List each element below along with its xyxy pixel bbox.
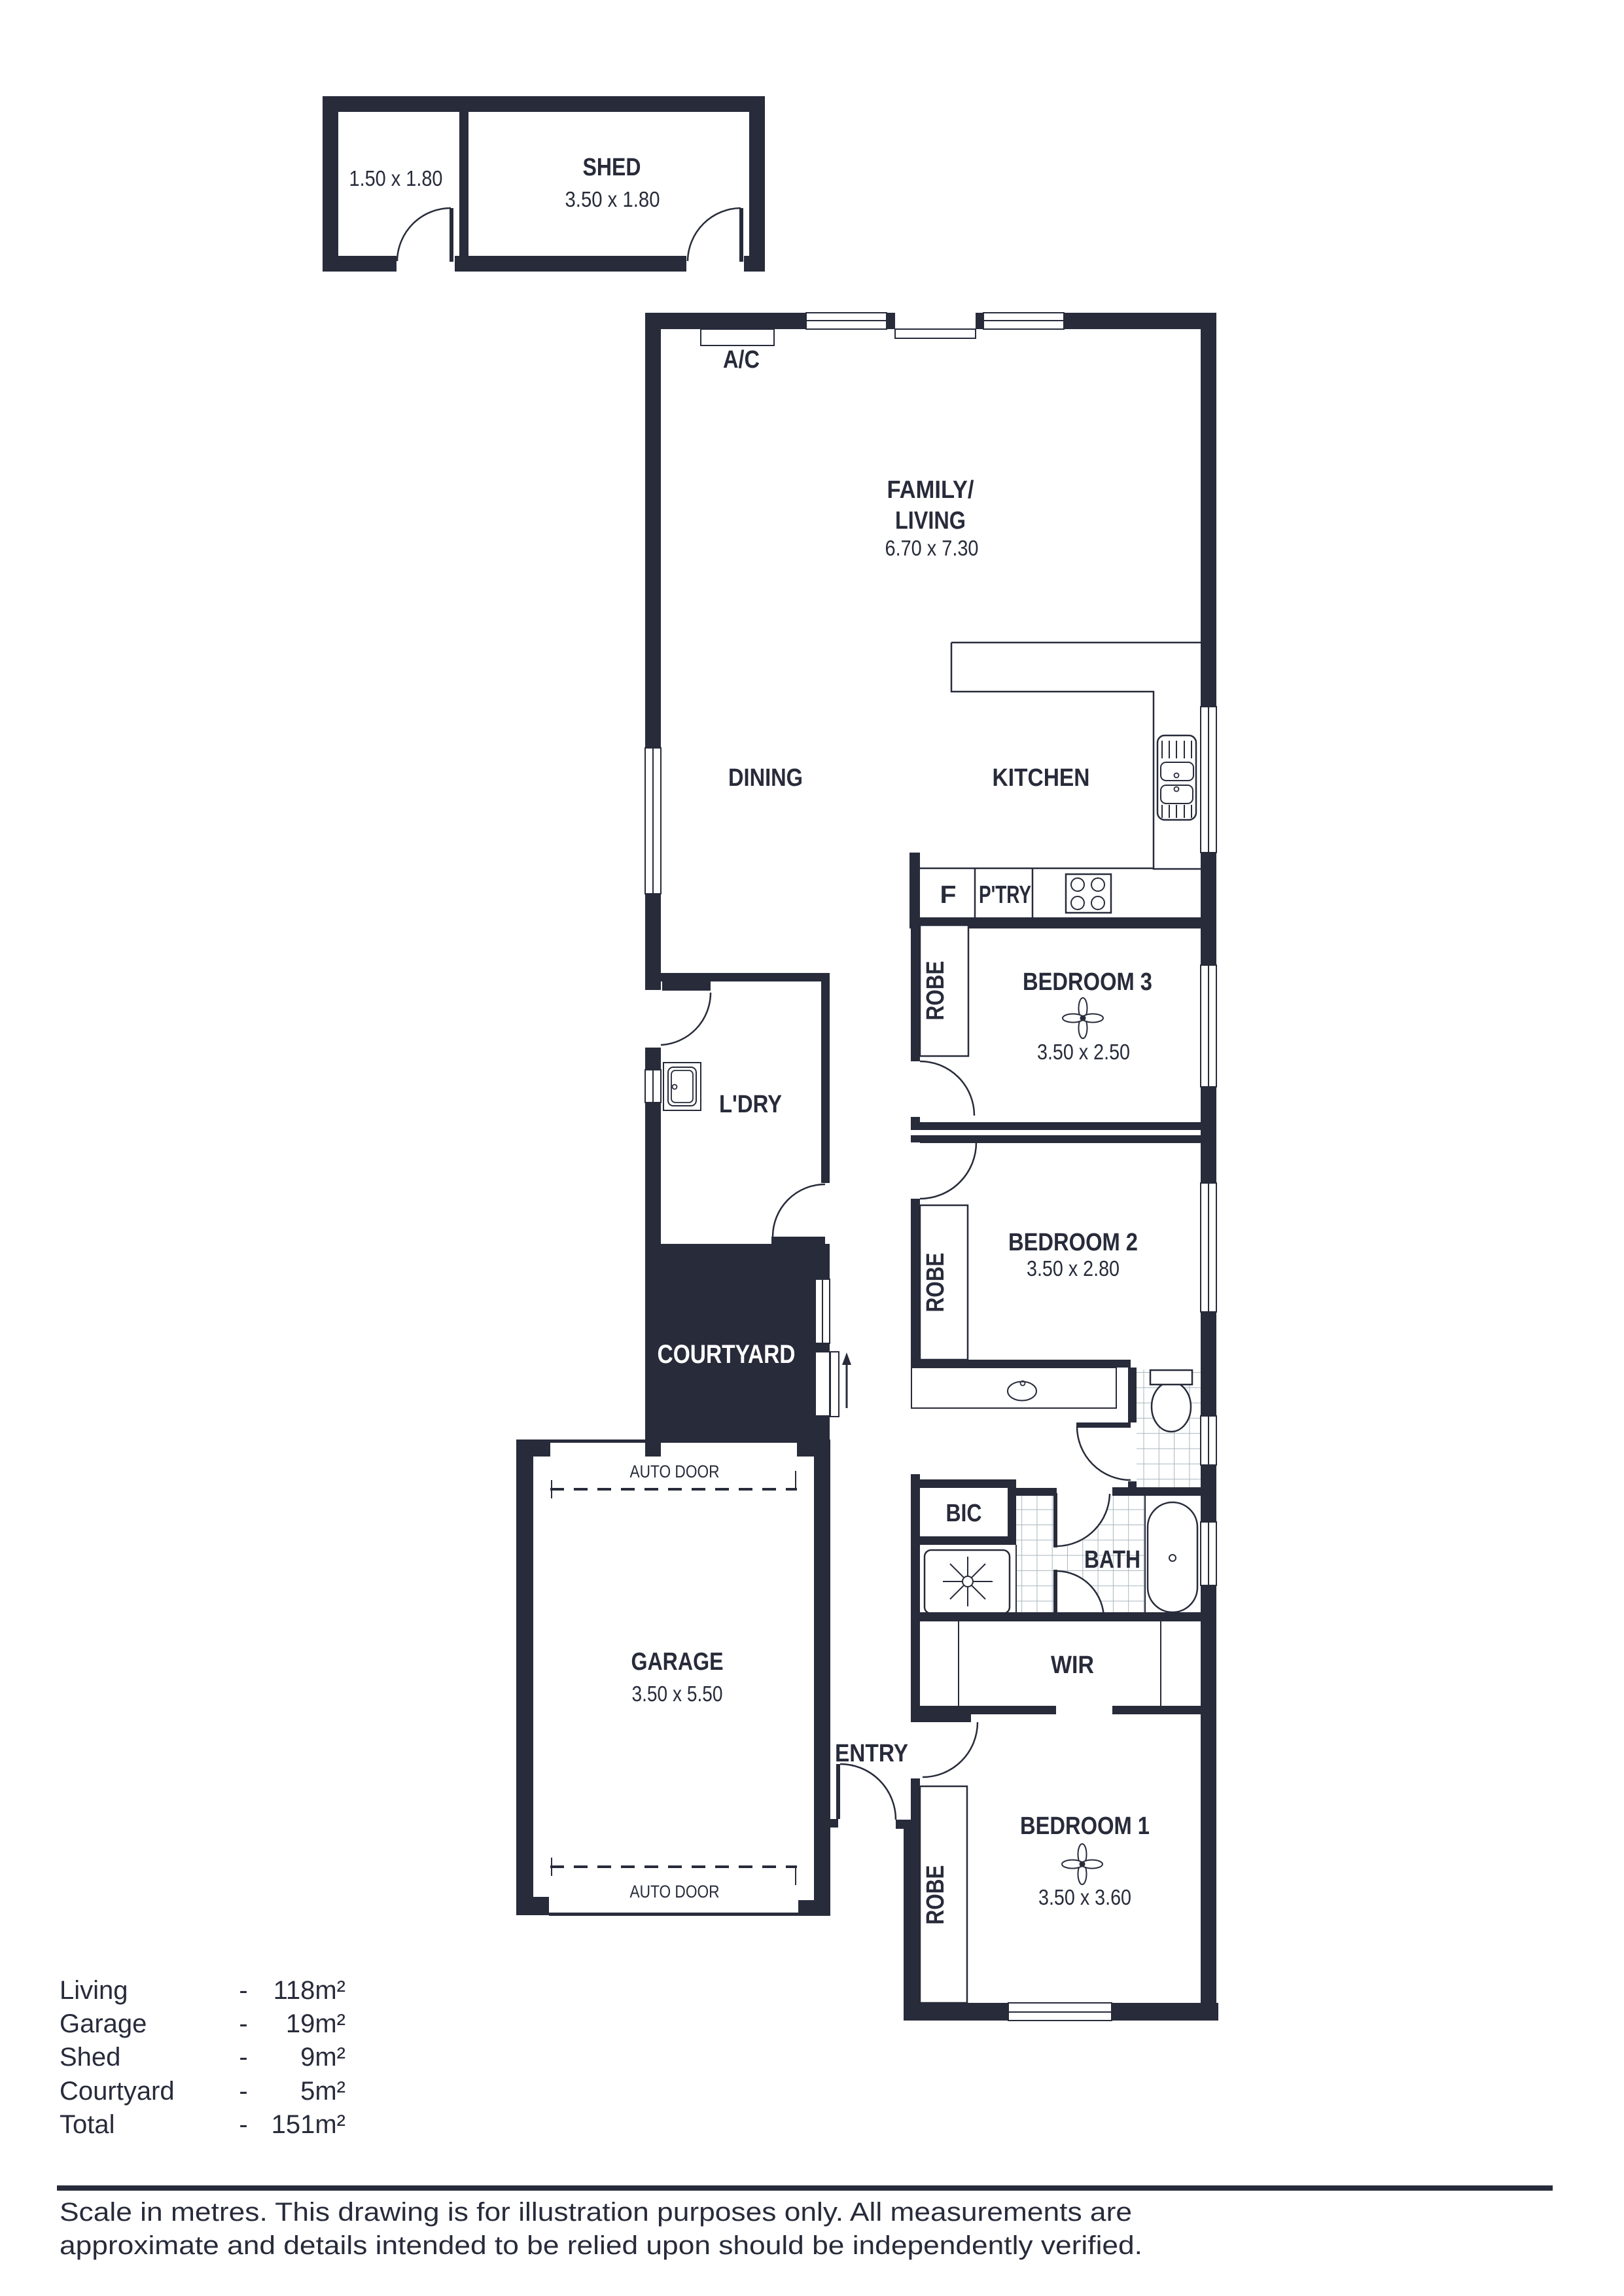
- svg-text:6.70 x 7.30: 6.70 x 7.30: [885, 536, 979, 560]
- svg-text:-: -: [239, 2009, 247, 2038]
- svg-text:151m²: 151m²: [272, 2110, 345, 2139]
- svg-text:Total: Total: [60, 2110, 115, 2139]
- svg-text:GARAGE: GARAGE: [631, 1648, 724, 1676]
- svg-text:BEDROOM 3: BEDROOM 3: [1023, 968, 1152, 996]
- svg-text:19m²: 19m²: [286, 2009, 345, 2038]
- svg-text:3.50 x 2.50: 3.50 x 2.50: [1037, 1040, 1130, 1064]
- svg-text:WIR: WIR: [1051, 1651, 1094, 1679]
- svg-text:FAMILY/: FAMILY/: [887, 476, 974, 504]
- svg-text:LIVING: LIVING: [895, 507, 966, 535]
- svg-text:-: -: [239, 2110, 247, 2139]
- svg-text:BIC: BIC: [946, 1500, 982, 1527]
- svg-text:L'DRY: L'DRY: [719, 1091, 782, 1118]
- svg-text:BATH: BATH: [1084, 1546, 1140, 1574]
- svg-text:3.50 x 2.80: 3.50 x 2.80: [1027, 1256, 1120, 1280]
- svg-text:3.50 x 5.50: 3.50 x 5.50: [632, 1682, 723, 1706]
- svg-text:5m²: 5m²: [300, 2077, 345, 2106]
- svg-text:Scale in metres. This drawing: Scale in metres. This drawing is for ill…: [60, 2198, 1132, 2227]
- svg-text:F: F: [940, 881, 957, 909]
- svg-text:approximate and details intend: approximate and details intended to be r…: [60, 2231, 1142, 2260]
- svg-text:-: -: [239, 2077, 247, 2106]
- svg-text:Living: Living: [60, 1976, 128, 2005]
- svg-text:DINING: DINING: [728, 764, 803, 792]
- svg-text:Shed: Shed: [60, 2043, 120, 2072]
- svg-text:ROBE: ROBE: [922, 1865, 949, 1925]
- svg-text:Courtyard: Courtyard: [60, 2077, 175, 2106]
- svg-text:COURTYARD: COURTYARD: [658, 1340, 796, 1369]
- svg-text:AUTO DOOR: AUTO DOOR: [630, 1882, 720, 1901]
- svg-text:3.50 x 1.80: 3.50 x 1.80: [565, 187, 660, 211]
- svg-text:-: -: [239, 1976, 247, 2005]
- svg-text:BEDROOM 1: BEDROOM 1: [1020, 1812, 1150, 1840]
- svg-text:ROBE: ROBE: [922, 1253, 949, 1313]
- svg-text:1.50 x 1.80: 1.50 x 1.80: [349, 166, 443, 190]
- svg-text:P'TRY: P'TRY: [979, 881, 1031, 909]
- svg-text:A/C: A/C: [723, 346, 760, 374]
- svg-text:Garage: Garage: [60, 2009, 147, 2038]
- svg-text:SHED: SHED: [583, 154, 641, 181]
- svg-text:9m²: 9m²: [300, 2043, 345, 2072]
- svg-text:3.50 x 3.60: 3.50 x 3.60: [1038, 1885, 1131, 1909]
- svg-text:AUTO DOOR: AUTO DOOR: [630, 1462, 720, 1481]
- svg-text:BEDROOM 2: BEDROOM 2: [1008, 1229, 1138, 1256]
- svg-text:-: -: [239, 2043, 247, 2072]
- svg-text:ROBE: ROBE: [922, 961, 949, 1021]
- svg-text:KITCHEN: KITCHEN: [993, 764, 1090, 792]
- svg-text:118m²: 118m²: [274, 1976, 345, 2005]
- svg-text:ENTRY: ENTRY: [835, 1740, 908, 1767]
